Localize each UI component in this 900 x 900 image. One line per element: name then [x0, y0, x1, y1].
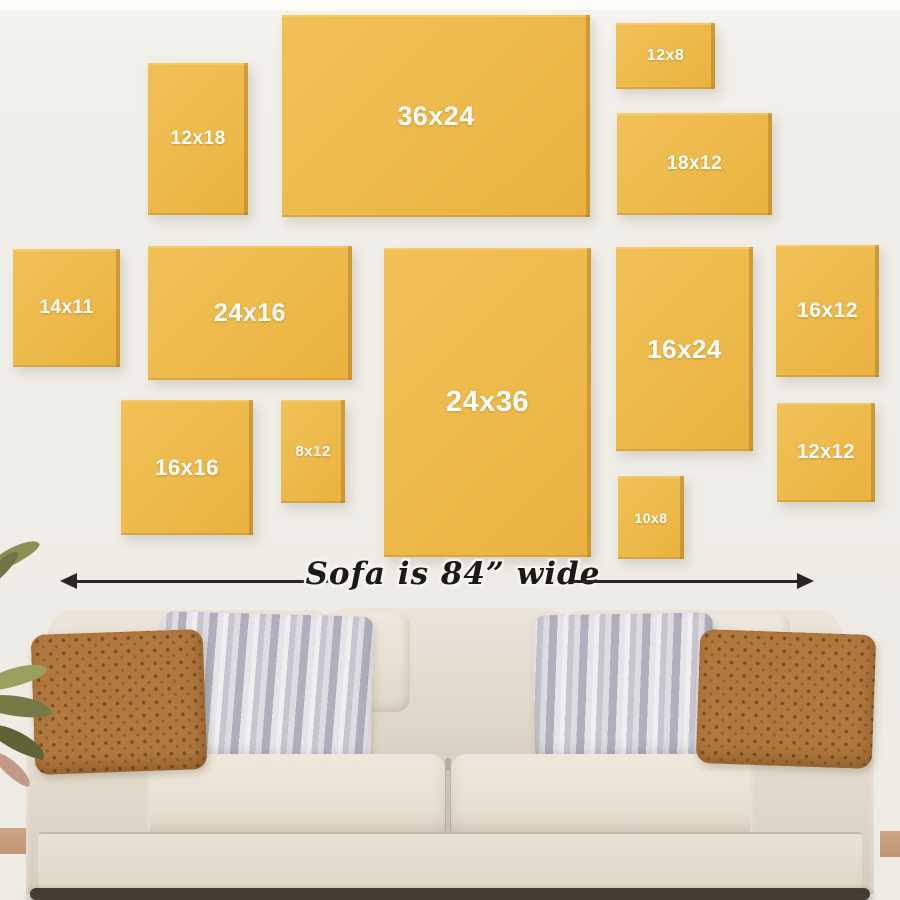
frame-16x12: 16x12	[776, 245, 879, 377]
frame-size-label: 12x18	[170, 128, 225, 150]
sofa-seat-seam	[445, 758, 451, 836]
frame-36x24: 36x24	[282, 15, 590, 217]
sofa	[26, 604, 874, 900]
brown-pillow-right	[696, 629, 877, 769]
frame-size-label: 10x8	[634, 510, 667, 526]
frame-size-label: 18x12	[667, 153, 722, 175]
frame-8x12: 8x12	[281, 400, 345, 503]
striped-pillow-right	[533, 612, 716, 761]
arrow-right-icon	[797, 573, 814, 589]
frame-12x12: 12x12	[777, 403, 875, 502]
frame-10x8: 10x8	[618, 476, 684, 559]
frame-size-label: 14x11	[39, 297, 93, 319]
wall-top-strip	[0, 0, 900, 10]
frame-size-label: 8x12	[295, 443, 330, 460]
frame-18x12: 18x12	[617, 113, 772, 215]
frame-12x8: 12x8	[616, 23, 715, 89]
sofa-width-label: Sofa is 84” wide	[290, 556, 616, 592]
frame-size-label: 16x24	[647, 334, 722, 365]
wall-art-size-guide: 12x18 36x24 12x8 18x12 14x11 24x16 24x36…	[0, 0, 900, 900]
frame-24x36: 24x36	[384, 248, 591, 557]
sofa-base	[38, 832, 862, 894]
frame-size-label: 12x12	[797, 441, 855, 464]
frame-size-label: 12x8	[647, 47, 685, 65]
measure-line-right	[573, 580, 803, 583]
frame-16x24: 16x24	[616, 247, 753, 451]
frame-size-label: 24x16	[214, 299, 286, 328]
frame-size-label: 16x16	[155, 455, 219, 481]
brown-pillow-left	[31, 629, 208, 775]
frame-14x11: 14x11	[13, 249, 120, 367]
wood-floor-right	[880, 831, 900, 857]
frame-size-label: 24x36	[446, 386, 529, 419]
frame-size-label: 36x24	[397, 101, 475, 132]
frame-24x16: 24x16	[148, 246, 352, 380]
frame-12x18: 12x18	[148, 63, 248, 215]
frame-16x16: 16x16	[121, 400, 253, 535]
sofa-floor-shadow	[30, 888, 870, 900]
frame-size-label: 16x12	[797, 299, 858, 323]
